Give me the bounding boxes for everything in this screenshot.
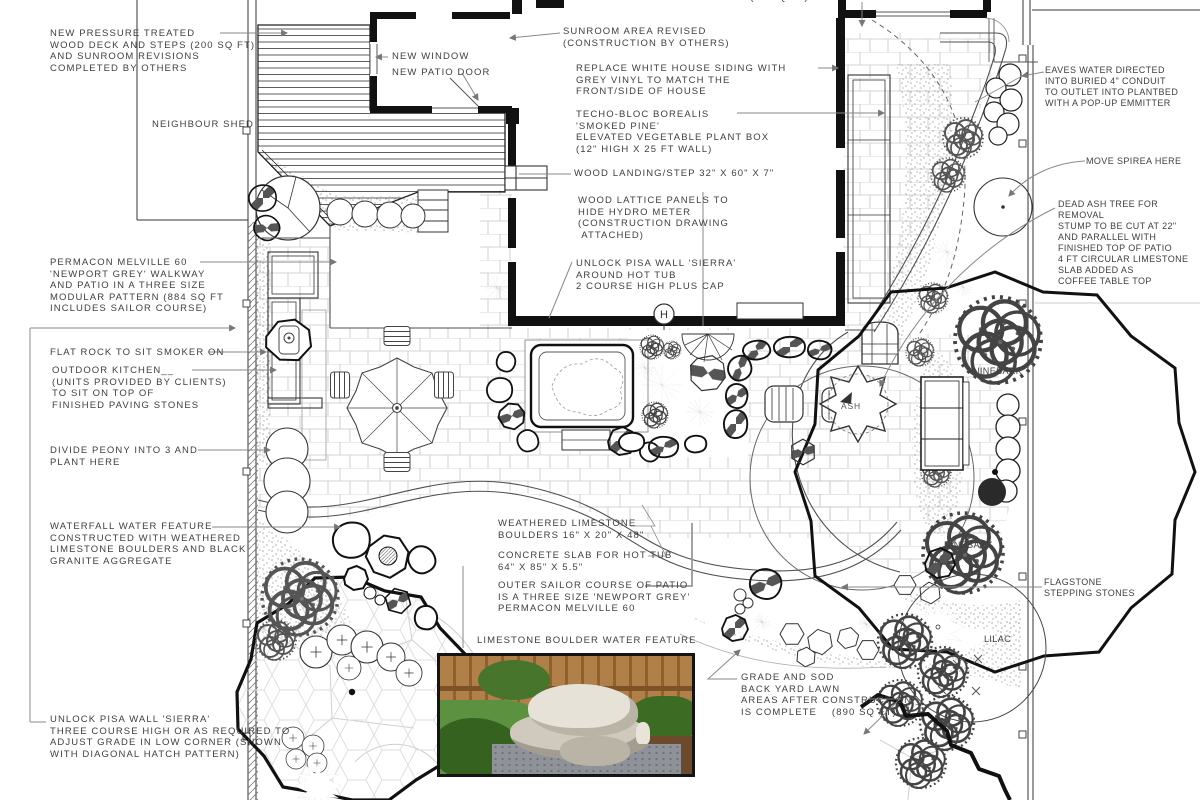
ash-label: ASH xyxy=(841,401,861,412)
flat-rock-note: FLAT ROCK TO SIT SMOKER ON xyxy=(50,347,224,359)
ninebark-upper-label: NINEBARK xyxy=(973,366,1022,377)
photo-caption: LIMESTONE BOULDER WATER FEATURE xyxy=(477,635,697,647)
hydro-meter-symbol: H xyxy=(654,304,674,330)
pisa-hot-tub-note: UNLOCK PISA WALL 'SIERRA' AROUND HOT TUB… xyxy=(576,258,736,293)
veg-box-note: TECHO-BLOC BOREALIS 'SMOKED PINE' ELEVAT… xyxy=(576,109,769,155)
limestone-boulders-note: WEATHERED LIMESTONE BOULDERS 16" X 20" X… xyxy=(498,518,644,541)
concrete-slab-note: CONCRETE SLAB (26 SQ FT) xyxy=(652,0,809,4)
curved-bench xyxy=(921,377,969,470)
ninebark-lower-label: NINEBARK xyxy=(944,540,993,551)
sunroom-note: SUNROOM AREA REVISED (CONSTRUCTION BY OT… xyxy=(563,26,730,49)
patio-door-recess xyxy=(737,303,803,319)
sailor-course-note: OUTER SAILOR COURSE OF PATIO IS A THREE … xyxy=(498,580,690,615)
grade-sod-note: GRADE AND SOD BACK YARD LAWN AREAS AFTER… xyxy=(741,672,929,718)
eaves-note: EAVES WATER DIRECTED INTO BURIED 4" COND… xyxy=(1045,65,1178,109)
photo-boulder-front xyxy=(560,736,630,766)
grill-bench xyxy=(862,322,898,364)
umbrella-table xyxy=(347,358,447,458)
landscape-plan-page: H CONCRETE SLAB (26 SQ FT) NEW PRESSURE … xyxy=(0,0,1200,800)
waterfall-note: WATERFALL WATER FEATURE CONSTRUCTED WITH… xyxy=(50,521,246,567)
wood-landing xyxy=(505,166,547,190)
move-spirea-note: MOVE SPIREA HERE xyxy=(1086,156,1181,167)
wood-landing-note: WOOD LANDING/STEP 32" X 60" X 7" xyxy=(574,168,774,180)
siding-note: REPLACE WHITE HOUSE SIDING WITH GREY VIN… xyxy=(576,63,786,98)
dead-ash-note: DEAD ASH TREE FOR REMOVAL STUMP TO BE CU… xyxy=(1058,199,1188,287)
new-patio-door-note: NEW PATIO DOOR xyxy=(392,67,490,79)
peony-circles xyxy=(264,428,310,533)
black-shrub-dot xyxy=(978,478,1006,506)
deck-note: NEW PRESSURE TREATED WOOD DECK AND STEPS… xyxy=(50,28,255,74)
permacon-note: PERMACON MELVILLE 60 'NEWPORT GREY' WALK… xyxy=(50,257,224,315)
outdoor-kitchen-note: OUTDOOR KITCHEN__ (UNITS PROVIDED BY CLI… xyxy=(52,365,227,411)
new-window-note: NEW WINDOW xyxy=(392,51,470,63)
sunroom xyxy=(370,12,512,113)
neighbour-shed-label: NEIGHBOUR SHED xyxy=(152,119,254,131)
pisa-low-corner-note: UNLOCK PISA WALL 'SIERRA' THREE COURSE H… xyxy=(50,714,290,760)
photo-statue xyxy=(636,722,650,744)
svg-text:H: H xyxy=(660,309,668,321)
lilac-label: LILAC xyxy=(984,634,1011,645)
hot-tub-slab-note: CONCRETE SLAB FOR HOT TUB 64" X 85" X 5.… xyxy=(498,550,672,573)
photo-boulder-top xyxy=(528,684,638,736)
peony-note: DIVIDE PEONY INTO 3 AND PLANT HERE xyxy=(50,445,198,468)
lattice-note: WOOD LATTICE PANELS TO HIDE HYDRO METER … xyxy=(578,195,729,241)
flagstone-label: FLAGSTONE STEPPING STONES xyxy=(1044,577,1135,599)
water-feature-photo xyxy=(437,653,695,777)
